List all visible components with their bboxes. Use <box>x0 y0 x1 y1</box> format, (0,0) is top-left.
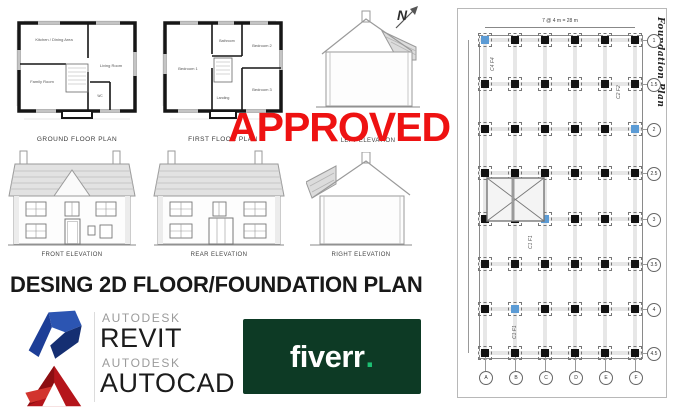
column-marker <box>541 305 549 313</box>
bubble-leader <box>485 357 486 371</box>
chimney <box>168 151 175 164</box>
fiverr-dot: . <box>365 339 374 375</box>
bubble-leader <box>545 357 546 371</box>
ground-floor-caption: GROUND FLOOR PLAN <box>16 136 138 143</box>
grid-bubble-row: 3.5 <box>647 258 661 272</box>
fiverr-wordmark: fiverr <box>290 339 365 375</box>
autocad-icon <box>24 364 86 408</box>
grid-bubble-row: 4 <box>647 303 661 317</box>
porch <box>62 111 92 118</box>
column-marker <box>631 215 639 223</box>
column-marker <box>601 125 609 133</box>
room-label: Bedroom 2 <box>252 43 272 48</box>
column-marker <box>511 305 519 313</box>
grid-beam-horizontal <box>479 307 641 311</box>
rear-elevation-drawing <box>152 148 286 251</box>
column-marker <box>541 349 549 357</box>
revit-icon <box>26 309 86 362</box>
grid-bubble-col: C <box>539 371 553 385</box>
grid-bubble-row: 1 <box>647 34 661 48</box>
room-label: Bedroom 3 <box>252 87 272 92</box>
right-elevation-drawing <box>306 152 416 251</box>
column-marker <box>481 80 489 88</box>
room-label: Family Room <box>30 79 54 84</box>
logo-divider <box>94 312 95 402</box>
column-marker <box>571 36 579 44</box>
grid-bubble-row: 2 <box>647 123 661 137</box>
fiverr-badge: fiverr . <box>243 319 421 394</box>
right-elevation-caption: RIGHT ELEVATION <box>306 252 416 258</box>
column-marker <box>511 349 519 357</box>
room-label: Kitchen / Dining Area <box>35 37 73 42</box>
grid-beam-horizontal <box>479 262 641 266</box>
quoins <box>275 196 280 244</box>
column-marker <box>601 349 609 357</box>
bubble-leader <box>605 357 606 371</box>
gig-image: Kitchen / Dining Area Living Room Family… <box>0 0 680 409</box>
column-marker <box>541 80 549 88</box>
column-marker <box>541 260 549 268</box>
column-marker <box>601 80 609 88</box>
column-marker <box>511 36 519 44</box>
wall <box>326 52 412 106</box>
bubble-leader <box>635 357 636 371</box>
approved-stamp: APPROVED <box>228 104 450 151</box>
column-type-label: C4 F4 <box>490 57 496 71</box>
column-marker <box>601 169 609 177</box>
north-arrow-head <box>410 6 418 15</box>
room-label: Bedroom 1 <box>178 66 198 71</box>
column-marker <box>601 305 609 313</box>
column-marker <box>571 169 579 177</box>
column-marker <box>571 215 579 223</box>
column-marker <box>481 305 489 313</box>
column-marker <box>571 125 579 133</box>
column-marker <box>571 260 579 268</box>
column-marker <box>481 36 489 44</box>
north-letter: N <box>397 7 408 23</box>
stair-shaft-opening <box>486 177 546 223</box>
column-marker <box>481 169 489 177</box>
foundation-plan-panel: Foundation Plan 7 @ 4 m = 28 m 11.522.53… <box>457 8 667 398</box>
front-elevation-caption: FRONT ELEVATION <box>6 252 138 258</box>
column-marker <box>511 260 519 268</box>
column-marker <box>541 36 549 44</box>
chimney <box>20 151 27 164</box>
column-marker <box>571 349 579 357</box>
column-marker <box>631 169 639 177</box>
column-marker <box>571 80 579 88</box>
headline: DESING 2D FLOOR/FOUNDATION PLAN <box>10 272 423 298</box>
quoins <box>14 196 19 244</box>
roof <box>154 164 284 196</box>
chimney <box>113 151 120 164</box>
grid-bubble-col: E <box>599 371 613 385</box>
grid-bubble-row: 2.5 <box>647 167 661 181</box>
column-marker <box>631 349 639 357</box>
grid-bubble-col: A <box>479 371 493 385</box>
bubble-leader <box>575 357 576 371</box>
quoins <box>158 196 163 244</box>
quoins <box>125 196 130 244</box>
room-label: Living Room <box>100 63 123 68</box>
column-type-label: C1 F1 <box>528 235 534 249</box>
rear-elevation-caption: REAR ELEVATION <box>152 252 286 258</box>
chimney <box>255 151 262 164</box>
room-label: WC <box>97 94 103 98</box>
column-marker <box>541 125 549 133</box>
column-marker <box>631 80 639 88</box>
grid-bubble-col: F <box>629 371 643 385</box>
grid-beam-horizontal <box>479 351 641 355</box>
roof-band <box>306 166 336 198</box>
grid-bubble-col: B <box>509 371 523 385</box>
revit-product: REVIT <box>100 323 182 354</box>
column-marker <box>631 305 639 313</box>
north-arrow: N <box>390 3 424 31</box>
wall <box>320 196 404 244</box>
grid-bubble-row: 1.5 <box>647 78 661 92</box>
grid-bubble-col: D <box>569 371 583 385</box>
front-elevation-drawing <box>6 148 138 251</box>
column-marker <box>601 215 609 223</box>
room-label: Bathroom <box>219 39 235 43</box>
column-marker <box>631 125 639 133</box>
column-marker <box>511 169 519 177</box>
column-marker <box>631 36 639 44</box>
grid-bubble-row: 4.5 <box>647 347 661 361</box>
column-marker <box>571 305 579 313</box>
ground-floor-plan-drawing: Kitchen / Dining Area Living Room Family… <box>16 20 138 120</box>
bubble-leader <box>515 357 516 371</box>
patio-door <box>209 218 233 244</box>
room-label: Landing <box>217 96 230 100</box>
column-marker <box>601 36 609 44</box>
column-type-label: C1 F1 <box>512 325 518 339</box>
column-marker <box>481 349 489 357</box>
grid-beam-horizontal <box>479 171 641 175</box>
grid-beam-horizontal <box>479 127 641 131</box>
column-marker <box>601 260 609 268</box>
column-marker <box>481 125 489 133</box>
grid-beam-horizontal <box>479 38 641 42</box>
column-marker <box>481 260 489 268</box>
column-marker <box>541 169 549 177</box>
autocad-product: AUTOCAD <box>100 368 235 399</box>
column-marker <box>511 80 519 88</box>
column-marker <box>511 125 519 133</box>
column-type-label: C2 F2 <box>616 85 622 99</box>
grid-bubble-row: 3 <box>647 213 661 227</box>
column-marker <box>631 260 639 268</box>
